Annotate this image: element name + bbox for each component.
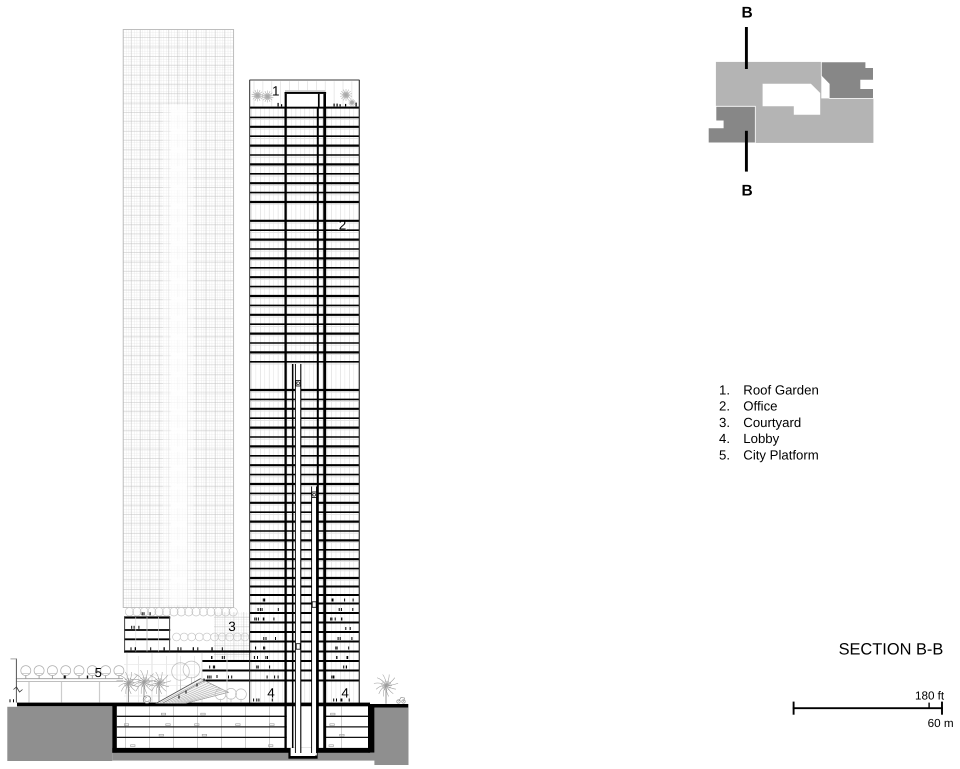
svg-text:1: 1 (272, 84, 280, 99)
svg-text:Office: Office (743, 399, 777, 414)
svg-text:B: B (742, 4, 753, 21)
svg-text:3.: 3. (719, 415, 730, 430)
svg-text:City Platform: City Platform (743, 448, 818, 463)
svg-text:Courtyard: Courtyard (743, 415, 801, 430)
svg-text:2: 2 (339, 218, 347, 233)
svg-text:Roof Garden: Roof Garden (743, 382, 819, 397)
svg-text:B: B (742, 183, 753, 200)
svg-text:1.: 1. (719, 382, 730, 397)
svg-text:180 ft: 180 ft (915, 690, 945, 703)
svg-text:60 m: 60 m (928, 717, 954, 730)
svg-text:4.: 4. (719, 431, 730, 446)
svg-text:3: 3 (228, 619, 236, 634)
svg-text:Lobby: Lobby (743, 431, 779, 446)
svg-text:5: 5 (95, 665, 102, 680)
svg-text:4: 4 (341, 686, 349, 701)
svg-text:5.: 5. (719, 448, 730, 463)
svg-text:SECTION B-B: SECTION B-B (839, 641, 944, 659)
svg-text:4: 4 (267, 686, 275, 701)
svg-text:2.: 2. (719, 399, 730, 414)
